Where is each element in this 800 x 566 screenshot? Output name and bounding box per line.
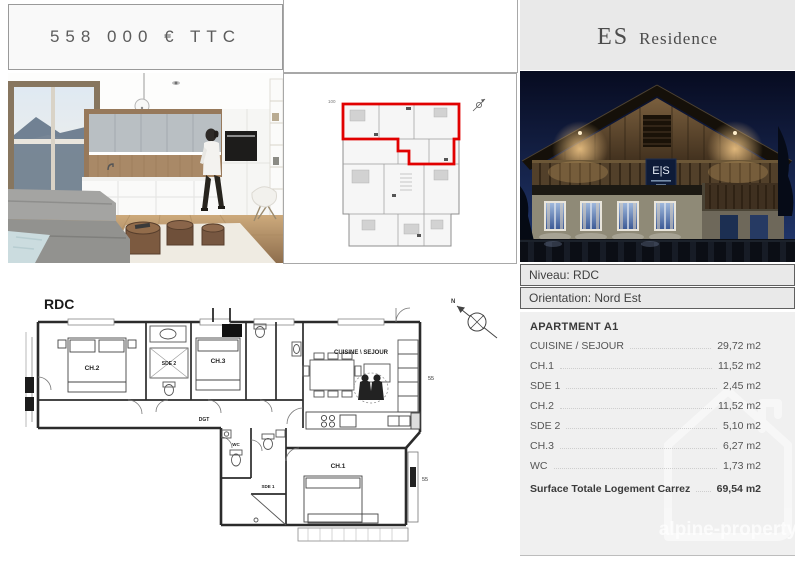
plan-label-wc: WC <box>232 442 240 447</box>
thumbnail-plan-art: 100 <box>284 74 516 263</box>
plan-label-sde1: SDE 1 <box>261 484 275 489</box>
niveau-bar: Niveau: RDC <box>520 264 795 286</box>
plan-dim-1: 55 <box>428 376 434 382</box>
plan-label-sde2: SDE 2 <box>162 361 177 367</box>
plan-dim-2: 55 <box>422 477 428 483</box>
table-row: WC1,73 m2 <box>530 460 761 480</box>
price-box: 558 000 € TTC <box>8 4 283 70</box>
watermark-text: alpine-property <box>659 519 795 540</box>
floorplan-drawing: RDC <box>8 282 508 560</box>
orientation-bar: Orientation: Nord Est <box>520 287 795 309</box>
plan-label-cuisine: CUISINE \ SEJOUR <box>334 350 389 356</box>
plan-label-dgt: DGT <box>199 417 210 423</box>
apartment-title: APARTMENT A1 <box>530 321 761 333</box>
chalet-night-photo: E|S <box>520 71 795 262</box>
orientation-label: Orientation: Nord Est <box>529 291 641 305</box>
exterior-photo-art: E|S <box>520 71 795 262</box>
main-floorplan: RDC <box>8 282 508 560</box>
residence-abbr: ES <box>597 24 629 51</box>
niveau-label: Niveau: RDC <box>529 268 599 282</box>
svg-text:E|S: E|S <box>652 165 670 177</box>
residence-name: Residence <box>639 29 718 49</box>
table-total-row: Surface Totale Logement Carrez69,54 m2 <box>530 483 761 503</box>
surface-table: APARTMENT A1 CUISINE / SEJOUR29,72 m2 CH… <box>520 312 795 503</box>
table-row: CH.111,52 m2 <box>530 360 761 380</box>
residence-header: ES Residence <box>520 0 795 70</box>
interior-photo-art <box>8 73 283 263</box>
plan-label-ch2: CH.2 <box>85 365 100 372</box>
table-row: CH.36,27 m2 <box>530 440 761 460</box>
top-middle-cell <box>283 0 518 73</box>
table-row: CH.211,52 m2 <box>530 400 761 420</box>
plan-level-label: RDC <box>44 296 74 312</box>
property-sheet: { "header": { "price": "558 000 € TTC", … <box>0 0 800 566</box>
svg-text:N: N <box>451 299 455 305</box>
building-plan-thumbnail: 100 <box>283 73 517 264</box>
price-label: 558 000 € TTC <box>50 27 241 47</box>
interior-render-photo <box>8 73 283 263</box>
apartment-detail-panel: alpine-property APARTMENT A1 CUISINE / S… <box>520 312 795 556</box>
svg-text:100: 100 <box>328 99 336 104</box>
table-row: SDE 25,10 m2 <box>530 420 761 440</box>
plan-label-ch3: CH.3 <box>211 358 226 365</box>
table-row: SDE 12,45 m2 <box>530 380 761 400</box>
plan-label-ch1: CH.1 <box>331 463 346 470</box>
table-row: CUISINE / SEJOUR29,72 m2 <box>530 340 761 360</box>
